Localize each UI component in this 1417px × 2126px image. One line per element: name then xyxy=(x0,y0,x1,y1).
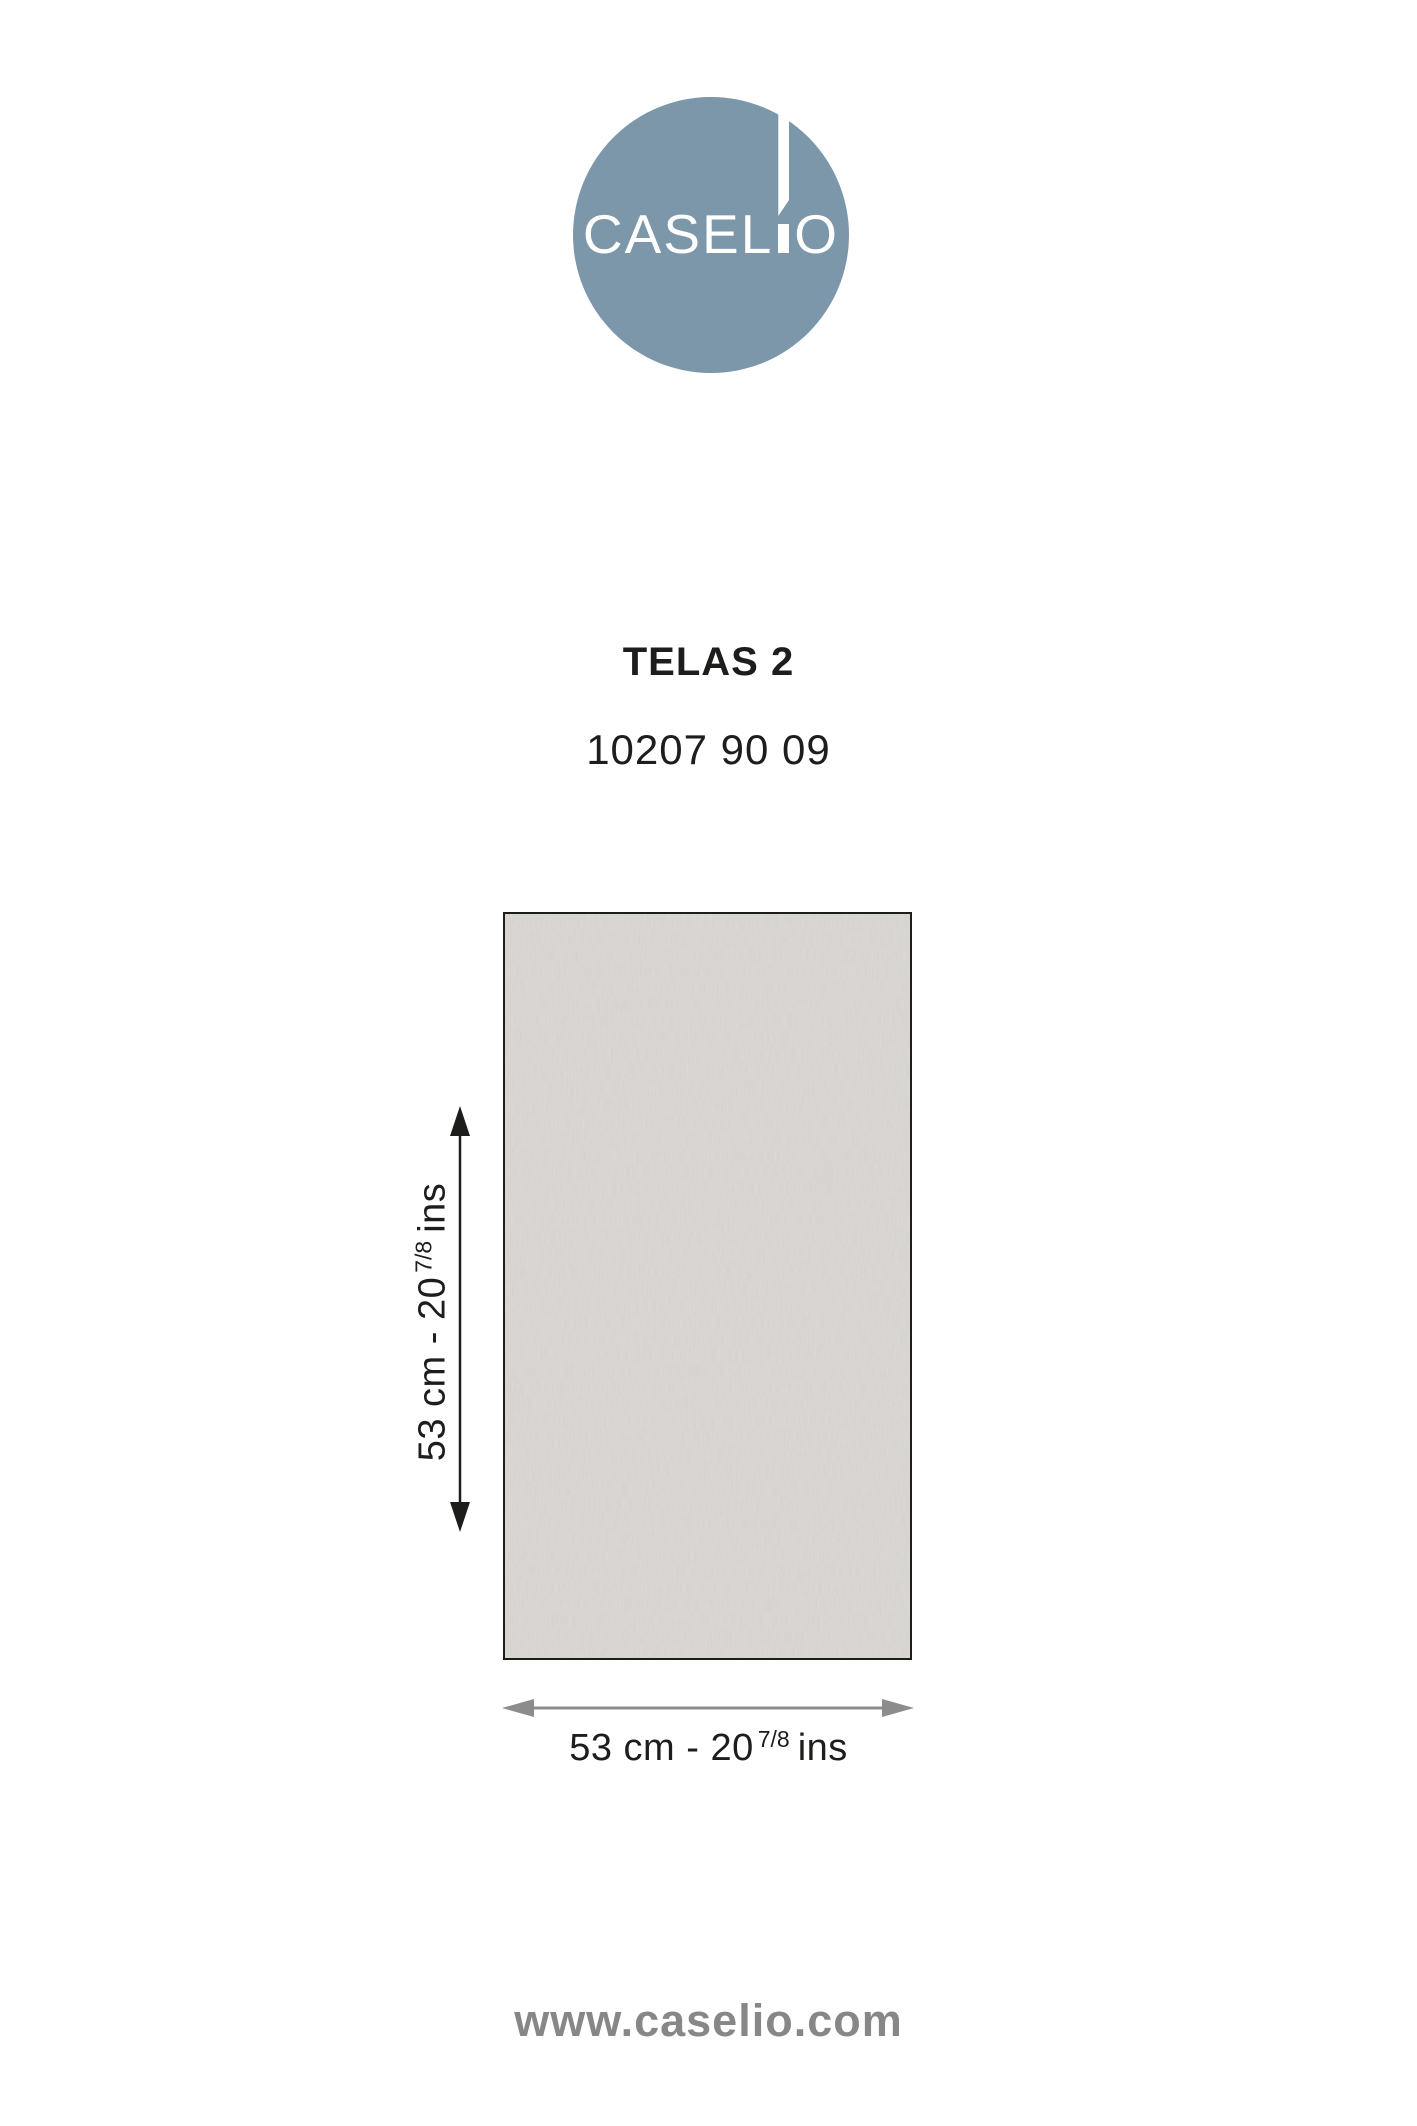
width-dimension-arrow-icon xyxy=(501,1695,915,1721)
height-fraction: 7/8 xyxy=(411,1241,437,1273)
caselio-logo: CASEL O xyxy=(573,97,849,373)
logo-i-stem xyxy=(778,224,789,253)
logo-text-right: O xyxy=(794,207,839,262)
product-reference: 10207 90 09 xyxy=(0,726,1417,774)
width-fraction: 7/8 xyxy=(758,1726,790,1752)
product-name: TELAS 2 xyxy=(0,640,1417,685)
height-dimension-label: 53 cm - 207/8ins xyxy=(412,1183,455,1462)
website-url: www.caselio.com xyxy=(0,1995,1417,2047)
logo-i-bar xyxy=(778,98,789,216)
fabric-swatch xyxy=(503,912,912,1660)
logo-text-left: CASEL xyxy=(583,207,773,262)
fabric-texture xyxy=(505,914,910,1658)
logo-wordmark: CASEL O xyxy=(573,207,849,262)
width-dimension-label: 53 cm - 207/8ins xyxy=(0,1727,1417,1770)
